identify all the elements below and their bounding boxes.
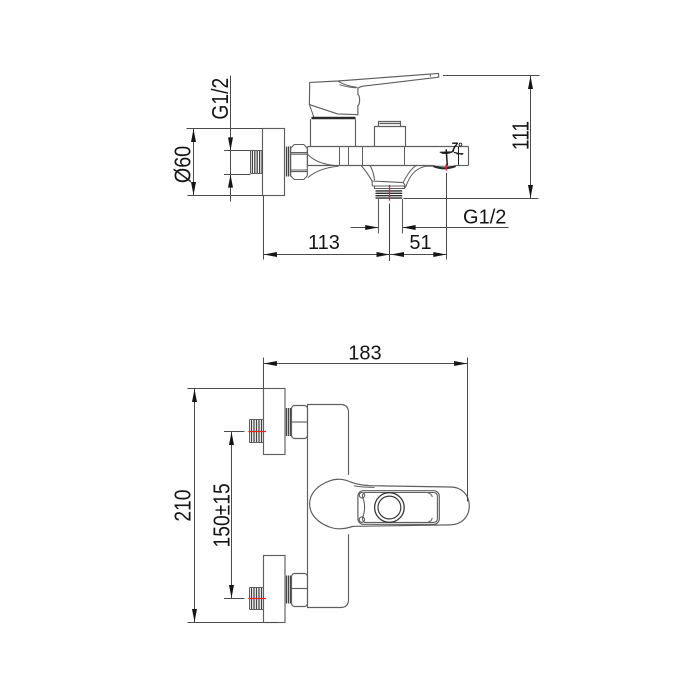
svg-text:G1/2: G1/2 xyxy=(207,78,233,120)
svg-text:111: 111 xyxy=(508,121,534,150)
svg-text:7°: 7° xyxy=(451,142,462,154)
svg-text:G1/2: G1/2 xyxy=(463,207,506,229)
svg-text:51: 51 xyxy=(409,232,431,254)
svg-text:Ø60: Ø60 xyxy=(169,146,196,183)
svg-text:183: 183 xyxy=(348,342,381,364)
svg-text:210: 210 xyxy=(170,489,196,521)
svg-text:113: 113 xyxy=(308,232,340,254)
svg-text:150±15: 150±15 xyxy=(209,483,235,547)
